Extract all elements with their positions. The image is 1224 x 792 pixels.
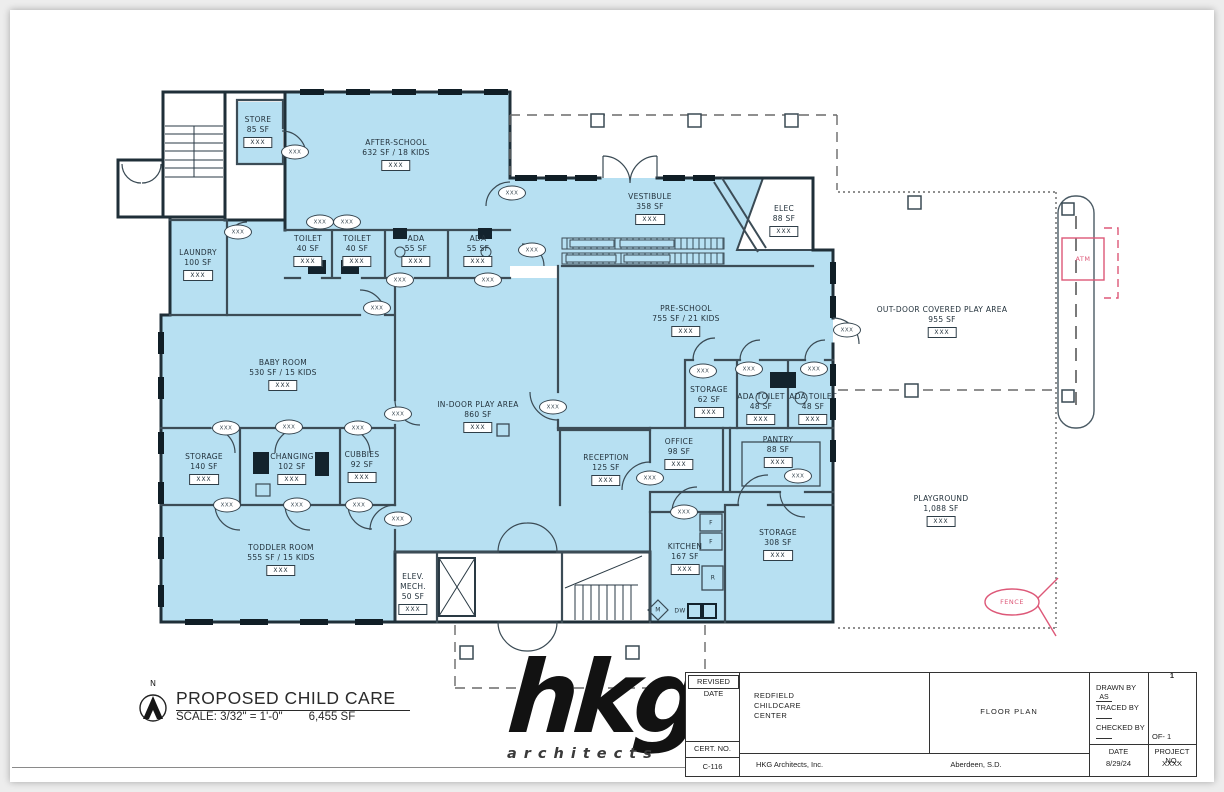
date-value: 8/29/24 <box>1089 759 1148 768</box>
checked-by-label: CHECKED BY <box>1096 723 1145 732</box>
drawing-title: PROPOSED CHILD CARE <box>176 688 410 711</box>
drawn-by-value: AS <box>1096 694 1112 702</box>
room-fills <box>161 92 833 622</box>
divider-line <box>686 741 739 742</box>
pink-annotations <box>985 228 1118 636</box>
traced-by-value <box>1096 718 1112 719</box>
project-name: REDFIELD CHILDCARE CENTER <box>754 691 924 720</box>
project-no-value: XXXX <box>1148 759 1196 768</box>
hkg-logo: hkg <box>505 652 703 744</box>
sheet-title: FLOOR PLAN <box>929 707 1089 716</box>
date-label: DATE <box>1089 747 1148 756</box>
drawn-by-label: DRAWN BY <box>1096 683 1136 692</box>
scale-text: SCALE: 3/32" = 1'-0" <box>176 711 283 723</box>
sheet-number: 1 <box>1148 671 1196 680</box>
traced-by-row: TRACED BY <box>1096 703 1146 721</box>
north-label: N <box>150 679 156 688</box>
checked-by-value <box>1096 738 1112 739</box>
checked-by-row: CHECKED BY <box>1096 723 1146 741</box>
traced-by-label: TRACED BY <box>1096 703 1139 712</box>
cert-no-label: CERT. NO. <box>686 744 739 753</box>
title-block-divider <box>739 673 740 776</box>
firm-name: HKG Architects, Inc. <box>756 760 823 769</box>
north-arrow-icon <box>140 695 166 721</box>
divider-line <box>1089 744 1196 745</box>
hkg-logo-subtext: architects <box>507 746 659 762</box>
cert-no-value: C-116 <box>686 762 739 771</box>
revised-date-label: REVISED DATE <box>688 675 739 689</box>
drawn-by-row: DRAWN BY AS <box>1096 683 1146 702</box>
sheet-of-label: OF- 1 <box>1152 732 1171 741</box>
divider-line <box>686 757 739 758</box>
firm-location: Aberdeen, S.D. <box>916 760 1036 769</box>
total-area-text: 6,455 SF <box>309 711 356 723</box>
drawing-sheet-stage: STORE85 SFXXXAFTER-SCHOOL632 SF / 18 KID… <box>0 0 1224 792</box>
divider-line <box>739 753 1089 754</box>
title-block: REVISED DATE CERT. NO. C-116 REDFIELD CH… <box>685 672 1197 777</box>
drawing-scale-line: SCALE: 3/32" = 1'-0"6,455 SF <box>176 711 355 723</box>
